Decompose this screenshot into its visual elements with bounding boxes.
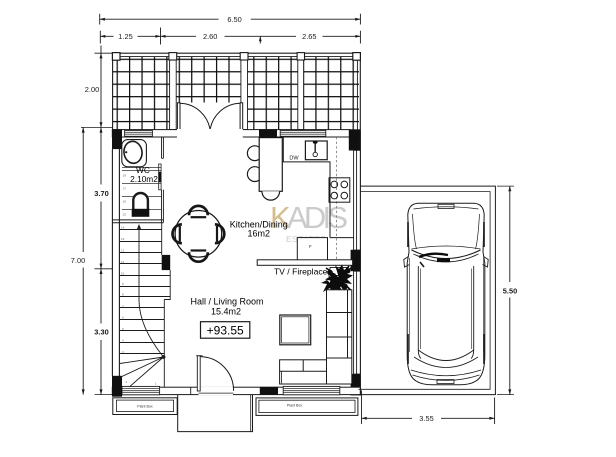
svg-text:+93.55: +93.55 bbox=[207, 324, 244, 338]
svg-text:14: 14 bbox=[121, 226, 125, 230]
svg-text:3.30: 3.30 bbox=[94, 327, 108, 336]
svg-text:7.00: 7.00 bbox=[71, 256, 85, 265]
svg-text:KADIS: KADIS bbox=[270, 200, 351, 235]
svg-text:11: 11 bbox=[121, 260, 124, 264]
svg-text:12: 12 bbox=[121, 249, 125, 253]
svg-text:F: F bbox=[309, 244, 312, 249]
svg-text:Plant Box: Plant Box bbox=[287, 404, 303, 408]
svg-text:13: 13 bbox=[121, 237, 125, 241]
svg-text:15.4m2: 15.4m2 bbox=[211, 306, 241, 316]
svg-text:2.00: 2.00 bbox=[85, 85, 99, 94]
svg-text:3.70: 3.70 bbox=[94, 189, 108, 198]
svg-text:17: 17 bbox=[123, 187, 127, 191]
svg-text:2.60: 2.60 bbox=[203, 32, 217, 41]
svg-text:15: 15 bbox=[123, 213, 127, 217]
svg-text:16: 16 bbox=[123, 200, 127, 204]
svg-text:6.50: 6.50 bbox=[227, 15, 241, 24]
svg-text:TV / Fireplace: TV / Fireplace bbox=[274, 267, 328, 277]
svg-text:DW: DW bbox=[289, 156, 299, 162]
svg-text:2.65: 2.65 bbox=[302, 32, 316, 41]
svg-text:1.25: 1.25 bbox=[118, 32, 132, 41]
svg-text:16m2: 16m2 bbox=[248, 229, 271, 239]
svg-text:2.10m2: 2.10m2 bbox=[130, 174, 158, 184]
svg-text:Hall / Living Room: Hall / Living Room bbox=[190, 297, 263, 307]
svg-text:18: 18 bbox=[123, 174, 127, 178]
svg-text:3.55: 3.55 bbox=[419, 414, 433, 423]
svg-text:10: 10 bbox=[121, 272, 125, 276]
svg-text:Plant Box: Plant Box bbox=[137, 405, 153, 409]
svg-text:5.50: 5.50 bbox=[503, 287, 517, 296]
